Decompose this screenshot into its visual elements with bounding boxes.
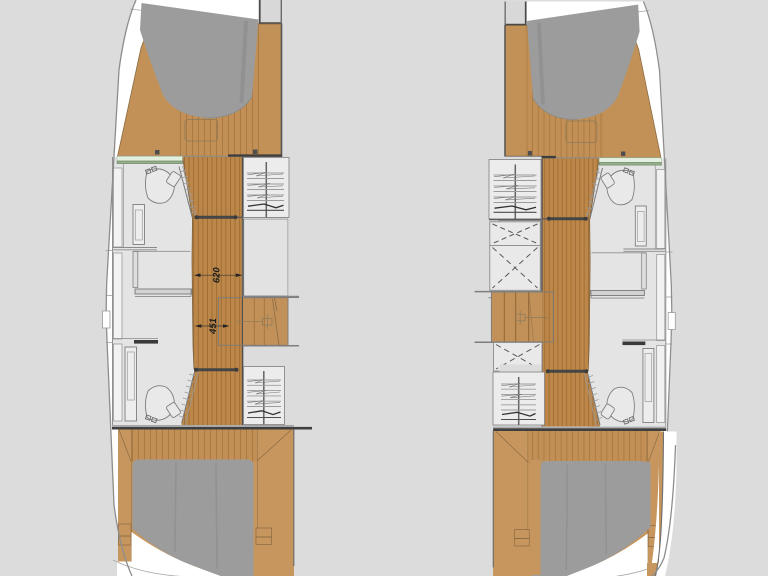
svg-text:620: 620 [212,267,223,284]
svg-text:451: 451 [208,318,219,335]
